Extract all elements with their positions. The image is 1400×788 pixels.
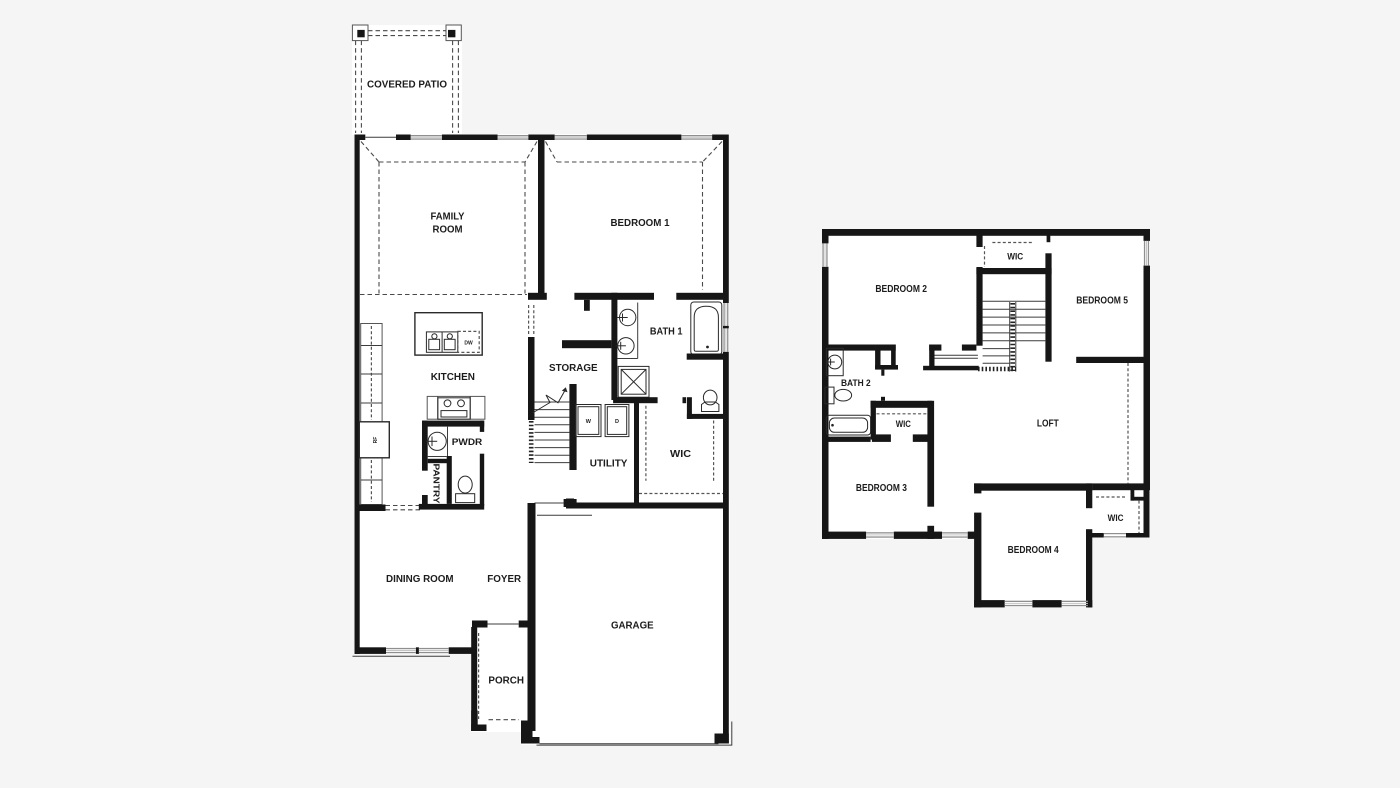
svg-text:BEDROOM 1: BEDROOM 1 xyxy=(611,218,670,229)
svg-text:BEDROOM 4: BEDROOM 4 xyxy=(1008,545,1059,556)
svg-text:COVERED PATIO: COVERED PATIO xyxy=(367,80,447,91)
svg-text:WIC: WIC xyxy=(1007,252,1023,262)
svg-text:BEDROOM 2: BEDROOM 2 xyxy=(875,284,927,295)
svg-text:FOYER: FOYER xyxy=(487,574,522,585)
svg-text:BATH 1: BATH 1 xyxy=(650,327,683,338)
svg-text:ROOM: ROOM xyxy=(433,225,463,236)
svg-text:GARAGE: GARAGE xyxy=(611,621,654,632)
svg-text:LOFT: LOFT xyxy=(1037,419,1059,430)
svg-text:W: W xyxy=(586,419,592,425)
svg-text:DW: DW xyxy=(464,341,473,347)
svg-text:PWDR: PWDR xyxy=(452,437,483,448)
svg-text:RF: RF xyxy=(373,437,379,444)
svg-text:KITCHEN: KITCHEN xyxy=(431,372,475,383)
svg-text:DINING ROOM: DINING ROOM xyxy=(386,574,454,585)
svg-text:PORCH: PORCH xyxy=(488,676,524,687)
svg-text:STORAGE: STORAGE xyxy=(549,363,598,374)
svg-text:BEDROOM 5: BEDROOM 5 xyxy=(1076,296,1128,307)
svg-text:FAMILY: FAMILY xyxy=(431,212,465,223)
svg-text:WIC: WIC xyxy=(896,419,912,429)
svg-text:WIC: WIC xyxy=(670,449,691,460)
svg-text:BEDROOM 3: BEDROOM 3 xyxy=(856,483,907,494)
svg-text:UTILITY: UTILITY xyxy=(590,459,628,470)
svg-text:WIC: WIC xyxy=(1108,513,1124,523)
svg-text:PANTRY: PANTRY xyxy=(432,464,442,504)
svg-text:BATH 2: BATH 2 xyxy=(841,378,871,388)
svg-text:D: D xyxy=(615,419,619,425)
